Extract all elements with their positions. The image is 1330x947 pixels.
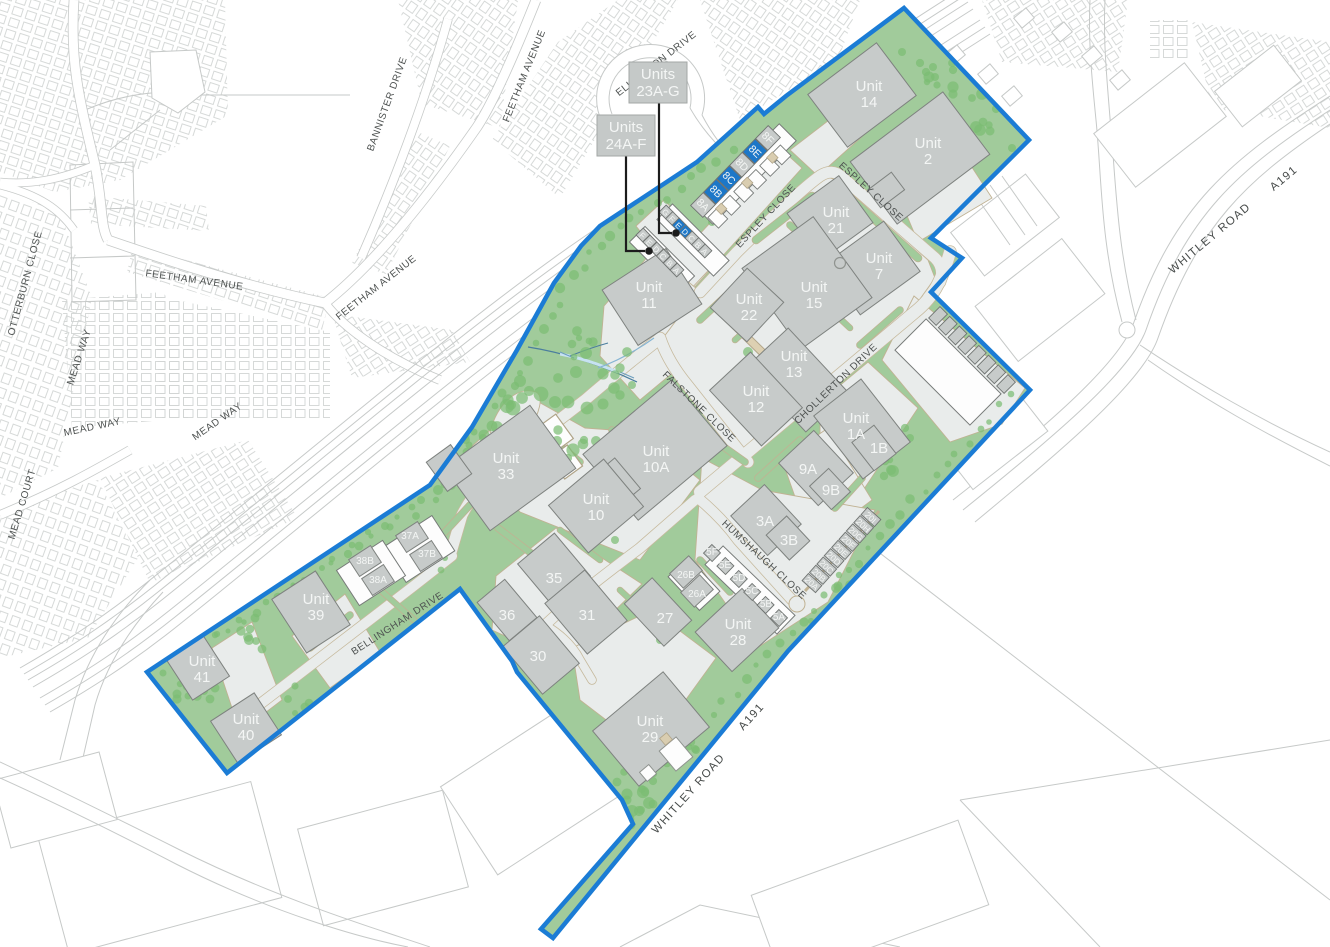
svg-text:Unit: Unit	[725, 616, 753, 633]
svg-text:38A: 38A	[369, 575, 387, 586]
svg-text:36: 36	[499, 607, 516, 624]
svg-text:14: 14	[861, 94, 878, 111]
svg-text:Unit: Unit	[843, 410, 871, 427]
svg-text:7: 7	[875, 266, 883, 283]
svg-text:2: 2	[924, 151, 932, 168]
svg-text:Unit: Unit	[643, 443, 671, 460]
svg-text:35: 35	[546, 570, 563, 587]
svg-text:1A: 1A	[847, 426, 865, 443]
svg-text:1B: 1B	[870, 440, 888, 457]
svg-text:15: 15	[806, 295, 823, 312]
svg-text:37A: 37A	[401, 531, 419, 542]
svg-text:Unit: Unit	[583, 491, 611, 508]
svg-text:26B: 26B	[677, 570, 695, 581]
svg-text:10A: 10A	[643, 459, 670, 476]
svg-text:Unit: Unit	[866, 250, 894, 267]
svg-text:24A-F: 24A-F	[606, 136, 647, 153]
svg-text:5E: 5E	[719, 560, 732, 571]
svg-text:13: 13	[786, 364, 803, 381]
svg-text:33: 33	[498, 466, 515, 483]
svg-text:9B: 9B	[822, 482, 840, 499]
svg-text:Unit: Unit	[493, 450, 521, 467]
svg-text:37B: 37B	[418, 549, 436, 560]
svg-text:30: 30	[530, 648, 547, 665]
svg-text:3A: 3A	[756, 513, 774, 530]
svg-text:10: 10	[588, 507, 605, 524]
svg-text:9A: 9A	[799, 461, 817, 478]
svg-text:Units: Units	[609, 119, 643, 136]
svg-text:Unit: Unit	[233, 711, 261, 728]
svg-text:Unit: Unit	[736, 291, 764, 308]
svg-text:5A: 5A	[773, 612, 786, 623]
svg-text:5C: 5C	[746, 586, 759, 597]
svg-text:21: 21	[828, 220, 845, 237]
svg-text:31: 31	[579, 607, 596, 624]
svg-text:Unit: Unit	[303, 591, 331, 608]
svg-text:Unit: Unit	[801, 279, 829, 296]
svg-text:Unit: Unit	[636, 279, 664, 296]
svg-text:28: 28	[730, 632, 747, 649]
svg-text:11: 11	[641, 295, 657, 312]
svg-text:Unit: Unit	[823, 204, 851, 221]
svg-text:Unit: Unit	[189, 653, 217, 670]
svg-text:3B: 3B	[780, 532, 798, 549]
svg-text:27: 27	[657, 610, 674, 627]
svg-text:41: 41	[194, 669, 211, 686]
svg-text:5F: 5F	[706, 547, 718, 558]
svg-text:39: 39	[308, 607, 325, 624]
svg-text:5B: 5B	[760, 599, 773, 610]
svg-text:Unit: Unit	[637, 713, 665, 730]
svg-text:23A-G: 23A-G	[636, 83, 679, 100]
svg-text:29: 29	[642, 729, 659, 746]
svg-text:5D: 5D	[733, 573, 746, 584]
svg-text:38B: 38B	[356, 556, 374, 567]
svg-text:Unit: Unit	[743, 383, 771, 400]
svg-text:26A: 26A	[688, 589, 706, 600]
svg-text:22: 22	[741, 307, 758, 324]
svg-text:Unit: Unit	[915, 135, 943, 152]
svg-text:40: 40	[238, 727, 255, 744]
svg-text:Unit: Unit	[781, 348, 809, 365]
svg-text:12: 12	[748, 399, 765, 416]
svg-text:Units: Units	[641, 66, 675, 83]
svg-text:Unit: Unit	[856, 78, 884, 95]
